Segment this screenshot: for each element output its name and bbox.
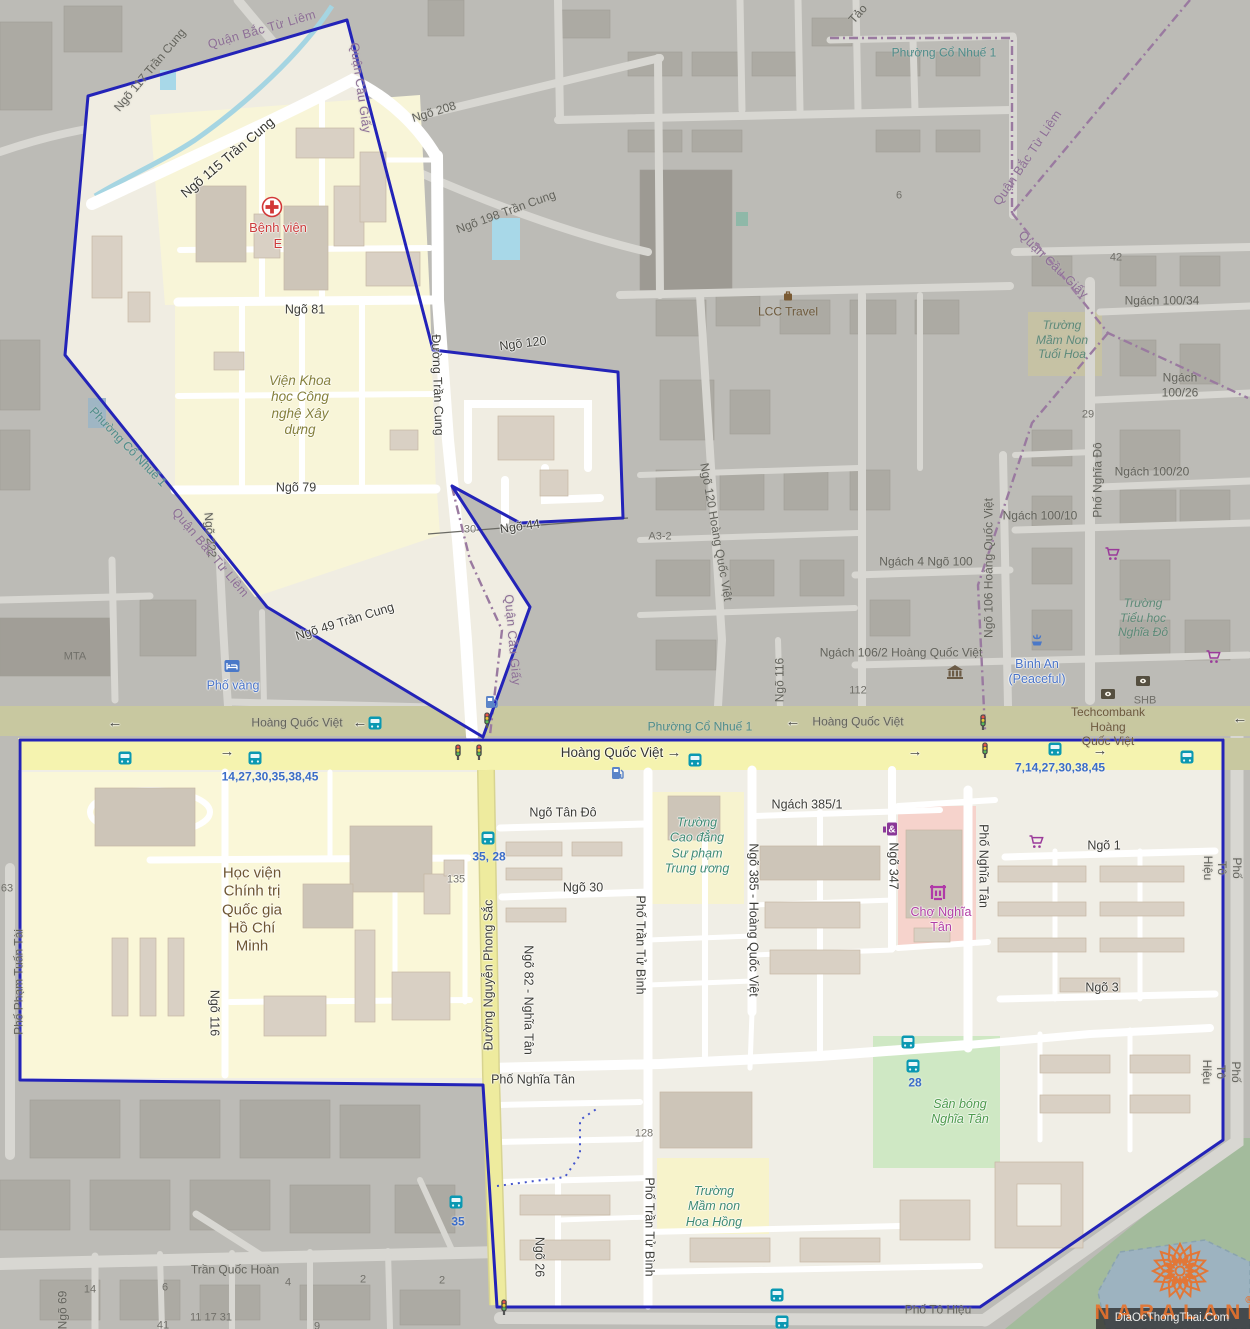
basemap-tiles: [0, 0, 1250, 1329]
attribution-box: [1096, 1308, 1250, 1329]
map-canvas[interactable]: NARALAND ® DiaOcThongThai.Com { "page": …: [0, 0, 1250, 1329]
